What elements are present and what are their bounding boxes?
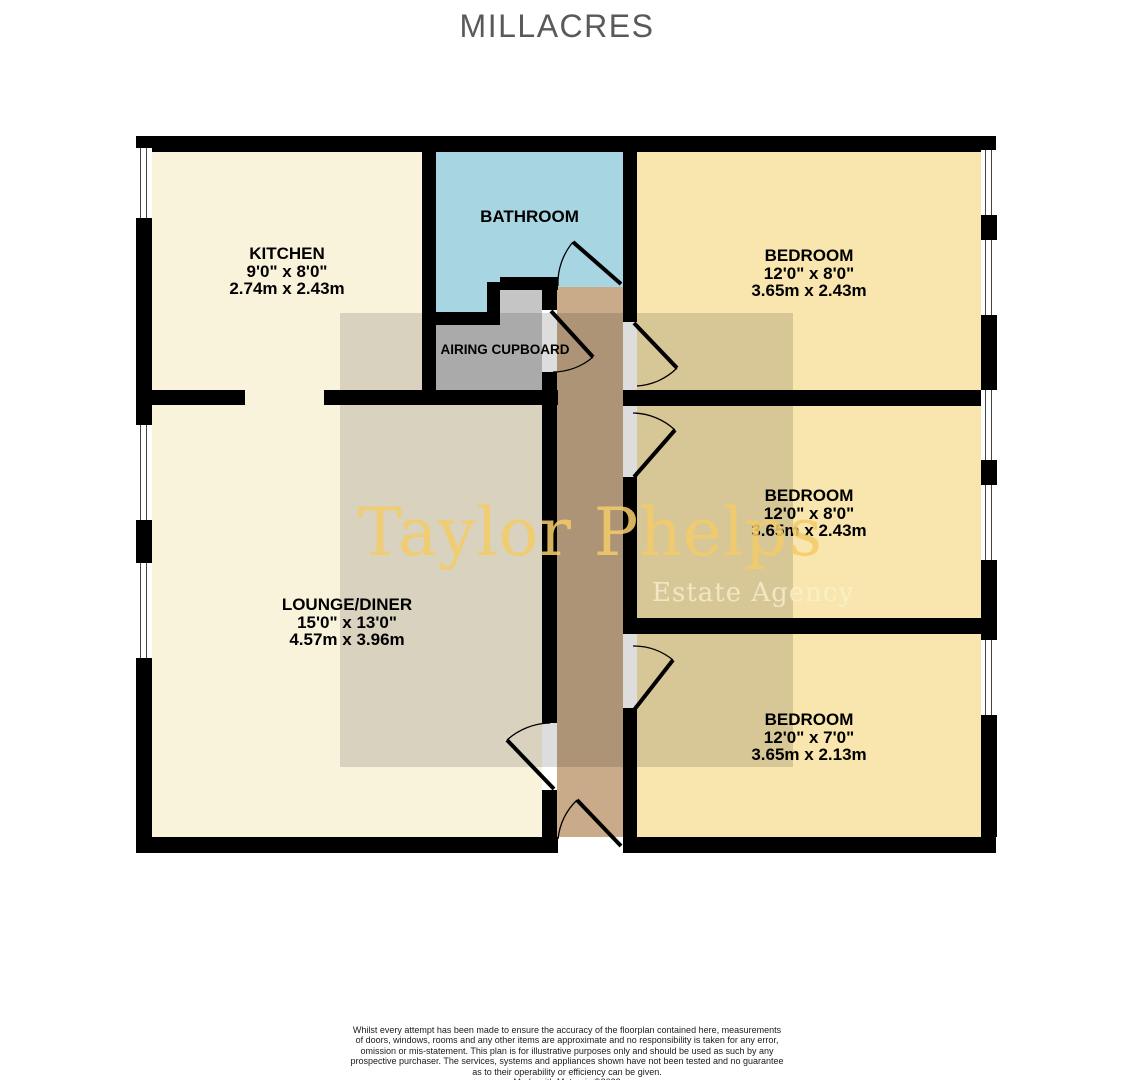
airing-cupboard-door-arc bbox=[553, 357, 593, 372]
bedroom-bottom-door-leaf bbox=[634, 660, 673, 710]
lounge-label: LOUNGE/DINER 15'0" x 13'0" 4.57m x 3.96m bbox=[152, 596, 542, 649]
disclaimer-line: of doors, windows, rooms and any other i… bbox=[337, 1035, 797, 1045]
watermark-brand: Taylor Phelps bbox=[358, 500, 823, 566]
disclaimer: Whilst every attempt has been made to en… bbox=[337, 1025, 797, 1080]
bathroom-door-arc bbox=[558, 242, 573, 286]
kitchen-label: KITCHEN 9'0" x 8'0" 2.74m x 2.43m bbox=[152, 245, 422, 298]
airing-cupboard-label: AIRING CUPBOARD bbox=[420, 341, 590, 359]
bedroom-middle-door-leaf bbox=[634, 430, 675, 477]
lounge-imperial: 15'0" x 13'0" bbox=[152, 614, 542, 632]
bedroom-top-label: BEDROOM 12'0" x 8'0" 3.65m x 2.43m bbox=[637, 247, 981, 300]
disclaimer-line: Whilst every attempt has been made to en… bbox=[337, 1025, 797, 1035]
floor-plan-page: MILLACRES bbox=[0, 0, 1133, 1080]
kitchen-name: KITCHEN bbox=[152, 245, 422, 263]
bedroom-middle-door-arc bbox=[633, 413, 675, 430]
bedroom-bottom-label: BEDROOM 12'0" x 7'0" 3.65m x 2.13m bbox=[637, 711, 981, 764]
bedroom-bottom-door-arc bbox=[633, 646, 673, 660]
bedroom-bottom-metric: 3.65m x 2.13m bbox=[637, 746, 981, 764]
disclaimer-line: omission or mis-statement. This plan is … bbox=[337, 1046, 797, 1056]
disclaimer-line: prospective purchaser. The services, sys… bbox=[337, 1056, 797, 1066]
front-door-leaf bbox=[577, 800, 621, 846]
bedroom-bottom-imperial: 12'0" x 7'0" bbox=[637, 729, 981, 747]
watermark-tagline: Estate Agency bbox=[652, 578, 854, 608]
bathroom-door-leaf bbox=[573, 242, 621, 284]
lounge-name: LOUNGE/DINER bbox=[152, 596, 542, 614]
bedroom-top-metric: 3.65m x 2.43m bbox=[637, 282, 981, 300]
bathroom-label: BATHROOM bbox=[436, 208, 623, 226]
bedroom-bottom-name: BEDROOM bbox=[637, 711, 981, 729]
bedroom-top-door-arc bbox=[637, 368, 677, 386]
bathroom-name: BATHROOM bbox=[436, 208, 623, 226]
kitchen-imperial: 9'0" x 8'0" bbox=[152, 263, 422, 281]
airing-cupboard-name: AIRING CUPBOARD bbox=[420, 341, 590, 359]
lounge-door-leaf bbox=[507, 740, 554, 789]
front-door-arc bbox=[558, 800, 577, 839]
bedroom-top-imperial: 12'0" x 8'0" bbox=[637, 265, 981, 283]
lounge-metric: 4.57m x 3.96m bbox=[152, 631, 542, 649]
disclaimer-line: as to their operability or efficiency ca… bbox=[337, 1067, 797, 1077]
bedroom-top-name: BEDROOM bbox=[637, 247, 981, 265]
page-title: MILLACRES bbox=[317, 8, 797, 45]
bedroom-top-door-leaf bbox=[634, 323, 677, 368]
kitchen-metric: 2.74m x 2.43m bbox=[152, 280, 422, 298]
lounge-door-arc bbox=[507, 723, 550, 740]
